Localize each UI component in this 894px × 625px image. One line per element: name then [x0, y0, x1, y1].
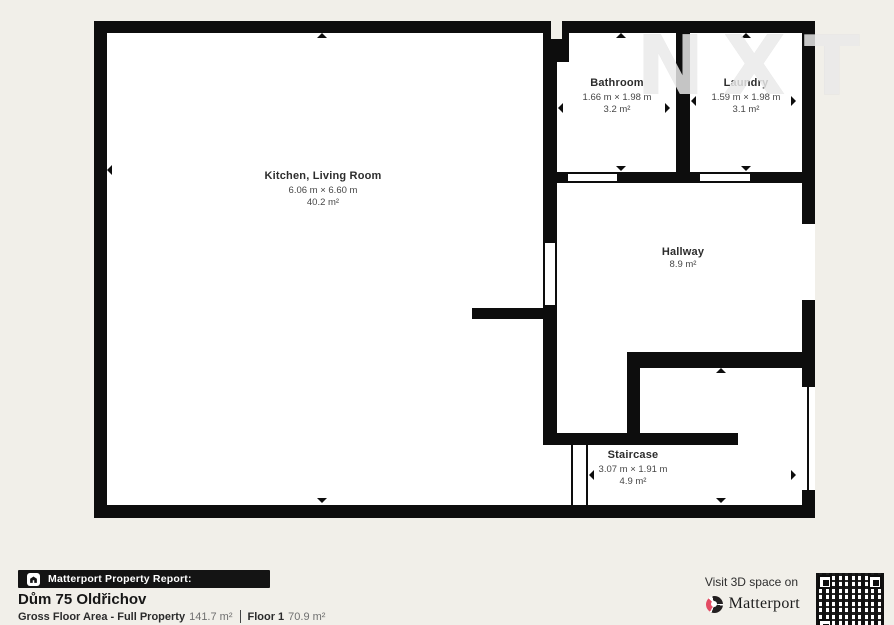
room-name: Staircase [573, 449, 693, 461]
qr-finder [868, 575, 882, 589]
room-label-kitchen: Kitchen, Living Room 6.06 m × 6.60 m 40.… [233, 170, 413, 208]
room-label-laundry: Laundry 1.59 m × 1.98 m 3.1 m² [686, 77, 806, 115]
wall [627, 352, 815, 368]
room-label-hallway: Hallway 8.9 m² [623, 246, 743, 270]
divider [240, 610, 241, 623]
room-name: Laundry [686, 77, 806, 89]
matterport-link[interactable]: Matterport [705, 595, 800, 613]
qr-pattern [816, 573, 884, 625]
wall [543, 30, 557, 242]
wall [94, 21, 815, 33]
visit-3d-text: Visit 3D space on [705, 575, 800, 589]
room-name: Kitchen, Living Room [233, 170, 413, 182]
property-title: Dům 75 Oldřichov [18, 591, 146, 608]
wall [472, 308, 557, 319]
measure-arrow [791, 470, 796, 480]
measure-arrow [107, 165, 112, 175]
floor-area-summary: Gross Floor Area - Full Property 141.7 m… [18, 610, 325, 623]
wall [543, 306, 557, 445]
matterport-logo-icon [706, 596, 723, 613]
building-icon [27, 573, 40, 586]
report-header-bar: Matterport Property Report: [18, 570, 270, 588]
room-name: Bathroom [557, 77, 677, 89]
door [700, 172, 750, 183]
qr-finder [818, 619, 832, 625]
measure-arrow [716, 368, 726, 373]
room-label-staircase: Staircase 3.07 m × 1.91 m 4.9 m² [573, 449, 693, 487]
window [802, 385, 815, 492]
measure-arrow [741, 166, 751, 171]
wall [94, 505, 815, 518]
measure-arrow [616, 33, 626, 38]
measure-arrow [716, 498, 726, 503]
room-area: 4.9 m² [573, 476, 693, 487]
room-dimensions: 6.06 m × 6.60 m [233, 185, 413, 196]
floor-plan: Kitchen, Living Room 6.06 m × 6.60 m 40.… [0, 0, 894, 560]
door [543, 241, 557, 307]
wall [543, 433, 738, 445]
room-area: 3.2 m² [557, 104, 677, 115]
room-dimensions: 3.07 m × 1.91 m [573, 464, 693, 475]
measure-arrow [741, 33, 751, 38]
room-area: 3.1 m² [686, 104, 806, 115]
qr-code[interactable] [816, 573, 884, 625]
visit-3d-block: Visit 3D space on Matterport [705, 575, 800, 613]
room-area: 40.2 m² [233, 197, 413, 208]
room-dimensions: 1.66 m × 1.98 m [557, 92, 677, 103]
room-label-bathroom: Bathroom 1.66 m × 1.98 m 3.2 m² [557, 77, 677, 115]
wall [627, 352, 640, 445]
qr-finder [818, 575, 832, 589]
measure-arrow [317, 498, 327, 503]
measure-arrow [317, 33, 327, 38]
room-area: 8.9 m² [623, 259, 743, 270]
wall-notch [551, 19, 562, 39]
floor-label: Floor 1 [248, 611, 285, 623]
floor-area-value: 70.9 m² [288, 611, 325, 623]
measure-arrow [616, 166, 626, 171]
gross-area-label: Gross Floor Area - Full Property [18, 611, 185, 623]
wall [94, 21, 107, 518]
door [568, 172, 617, 183]
room-dimensions: 1.59 m × 1.98 m [686, 92, 806, 103]
gross-area-value: 141.7 m² [189, 611, 232, 623]
matterport-wordmark: Matterport [729, 595, 800, 613]
report-bar-label: Matterport Property Report: [48, 573, 192, 585]
room-name: Hallway [623, 246, 743, 258]
window [802, 222, 815, 302]
